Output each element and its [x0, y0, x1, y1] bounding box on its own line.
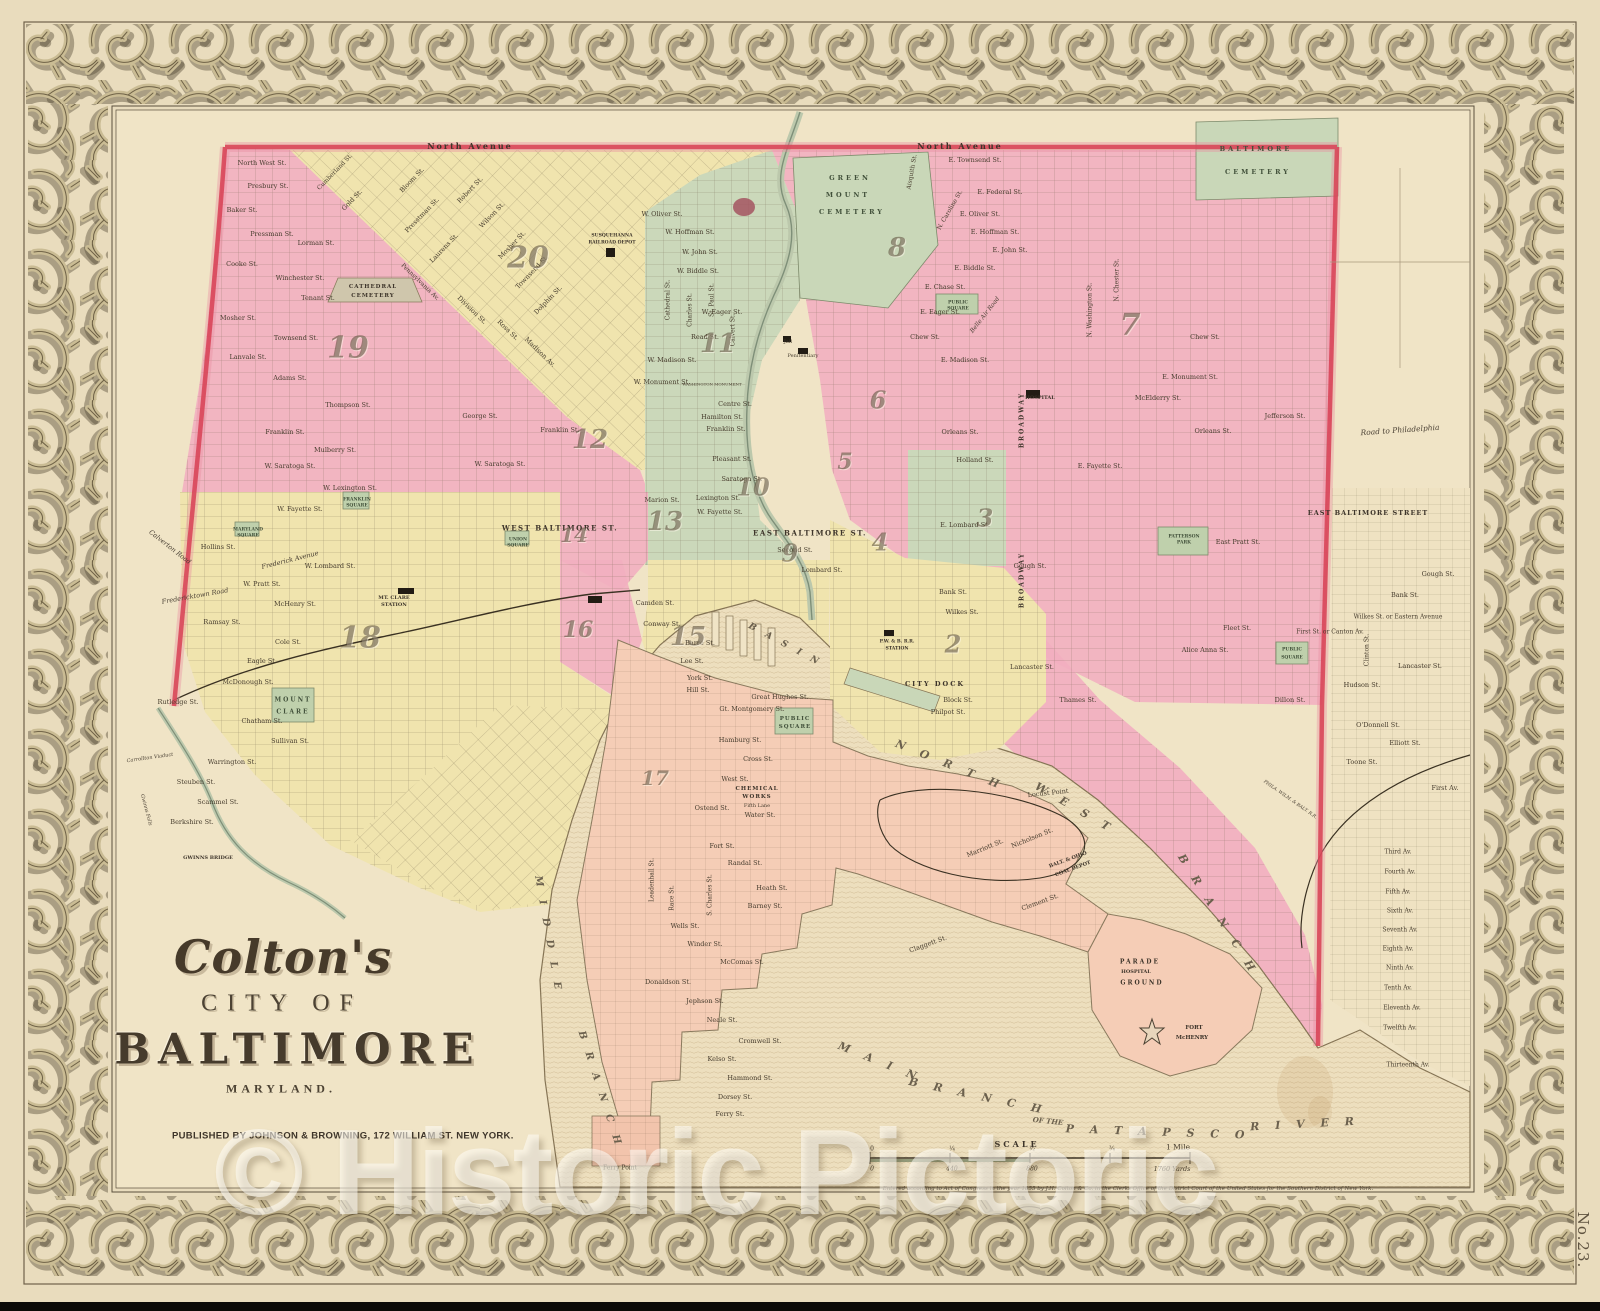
map-label: Wilkes St.	[945, 608, 978, 616]
map-label: MOUNT	[274, 697, 311, 704]
map-label: Philpot St.	[931, 708, 966, 716]
map-label: R I V E R	[1250, 1115, 1360, 1134]
map-label: Madison Av.	[523, 335, 557, 368]
map-label: Winchester St.	[276, 274, 325, 282]
map-label: CITY DOCK	[905, 680, 965, 688]
map-label: Fourth Av.	[1384, 869, 1415, 876]
map-label: E. Biddle St.	[954, 264, 995, 272]
ward-number: 19	[327, 331, 369, 366]
map-label: Ferry Point	[603, 1165, 637, 1172]
map-label: N. Washington St.	[1087, 283, 1094, 338]
map-label: Heath St.	[756, 884, 787, 892]
map-label: Orleans St.	[1195, 427, 1232, 435]
map-label: BALTIMORE	[1220, 145, 1293, 153]
map-label: E. Oliver St.	[960, 210, 1000, 218]
map-label: E. Madison St.	[941, 356, 989, 364]
map-label: P.W. & B. R.R.	[880, 640, 915, 645]
map-label: Sullivan St.	[271, 737, 309, 745]
map-label: Marriott St.	[965, 837, 1004, 859]
map-label: PUBLIC	[948, 301, 968, 306]
map-label: Eagle St.	[247, 657, 277, 665]
map-label: PARK	[1177, 541, 1191, 546]
map-label: Robert St.	[455, 175, 484, 205]
map-label: Berkshire St.	[170, 818, 213, 826]
map-label: Winder St.	[687, 940, 722, 948]
map-label: RAILROAD DEPOT	[588, 241, 635, 246]
scale-tick: 880	[1026, 1166, 1037, 1173]
map-label: WASHINGTON MONUMENT	[682, 382, 741, 387]
map-label: Thames St.	[1060, 696, 1097, 704]
map-label: Ninth Av.	[1386, 965, 1414, 972]
map-label: PARADE	[1120, 959, 1160, 966]
map-label: Rutledge St.	[158, 698, 199, 706]
map-label: Alice Anna St.	[1182, 646, 1229, 654]
ward-number: 7	[1120, 308, 1141, 343]
map-label: North Avenue	[917, 141, 1003, 151]
map-label: Water St.	[745, 811, 776, 819]
map-label: Bloom St.	[398, 166, 426, 195]
scale-tick: 0	[870, 1146, 874, 1153]
map-label: N O R T H	[893, 737, 1006, 793]
map-label: W. Fayette St.	[697, 508, 742, 516]
map-label: HOSPITAL	[1025, 395, 1055, 401]
map-label: W. Fayette St.	[277, 505, 322, 513]
map-label: Leadenhall St.	[649, 858, 656, 902]
map-label: Franklin St.	[706, 425, 745, 433]
map-sheet: North AvenueNorth AvenueNorth West St.Pr…	[0, 0, 1600, 1311]
map-label: W. Pratt St.	[243, 580, 280, 588]
ward-number: 16	[563, 617, 594, 643]
map-label: HOSPITAL	[1121, 969, 1151, 975]
map-label: Fifth Av.	[1385, 889, 1410, 896]
map-label: Chew St.	[910, 333, 940, 341]
map-label: North West St.	[238, 159, 287, 167]
map-label: Cathedral St.	[665, 280, 672, 321]
map-label: Gold St.	[340, 188, 364, 213]
ward-number: 6	[870, 386, 887, 415]
map-label: CEMETERY	[819, 208, 885, 216]
map-label: Pleasant St.	[712, 455, 751, 463]
map-label: Fredericktown Road	[161, 586, 229, 606]
map-label: Dillon St.	[1275, 696, 1306, 704]
ward-number: 3	[977, 504, 994, 533]
map-label: FORT	[1185, 1025, 1202, 1031]
scale-tick: 1760 Yards	[1154, 1165, 1191, 1173]
ward-number: 14	[560, 523, 588, 547]
map-label: McHenry St.	[274, 600, 316, 608]
map-label: West St.	[721, 775, 748, 783]
map-title-maryland: MARYLAND.	[226, 1082, 336, 1097]
scale-tick: 1 Mile	[1166, 1143, 1190, 1152]
map-label: Chatham St.	[241, 717, 282, 725]
scale-tick: ½	[1029, 1146, 1035, 1153]
map-label: Lombard St.	[802, 566, 843, 574]
map-label: B R A N C H	[576, 1030, 625, 1151]
map-label: Calverton Road	[147, 528, 192, 566]
map-label: First St. or Canton Av.	[1296, 629, 1364, 636]
map-label: Elliott St.	[1389, 739, 1420, 747]
map-label: Townsend St.	[274, 334, 318, 342]
map-label: Road to Philadelphia	[1360, 423, 1439, 437]
map-label: SQUARE	[1281, 656, 1303, 661]
map-label: Twelfth Av.	[1383, 1025, 1416, 1032]
map-label: MOUNT	[826, 191, 870, 199]
copyright-line: Entered according to Act of Congress in …	[883, 1186, 1374, 1192]
ward-number: 8	[888, 233, 906, 263]
map-label: SQUARE	[237, 534, 259, 539]
map-label: Franklin St.	[265, 428, 304, 436]
map-label: CEMETERY	[351, 293, 394, 299]
map-label: Aisquith St.	[905, 154, 918, 190]
map-label: Eighth Av.	[1383, 946, 1414, 953]
map-label: Nicholson St.	[1010, 826, 1054, 850]
scale-tick: 0	[870, 1166, 874, 1173]
map-label: CATHEDRAL	[349, 284, 397, 290]
map-label: W. Saratoga St.	[265, 462, 316, 470]
map-label: Claggett St.	[908, 933, 948, 954]
map-label: Dorsey St.	[718, 1093, 752, 1101]
map-label: Jail	[784, 339, 792, 345]
map-label: Presbury St.	[248, 182, 289, 190]
map-label: Cross St.	[743, 755, 773, 763]
map-label: OF THE	[1032, 1115, 1063, 1127]
map-label: Scammel St.	[197, 798, 238, 806]
map-label: P A T A P S C O	[1065, 1122, 1250, 1141]
ward-number: 13	[647, 507, 683, 537]
map-label: Gt. Montgomery St.	[719, 705, 784, 713]
publisher-imprint: PUBLISHED BY JOHNSON & BROWNING, 172 WIL…	[172, 1131, 514, 1142]
map-label: MT. CLARE	[378, 595, 409, 601]
map-label: Centre St.	[718, 400, 752, 408]
map-label: Marion St.	[644, 496, 679, 504]
map-label: PATTERSON	[1168, 535, 1199, 540]
map-label: Jefferson St.	[1265, 412, 1306, 420]
map-label: Clinton St.	[1364, 634, 1371, 667]
map-label: McDonough St.	[222, 678, 273, 686]
map-label: Mosher St.	[220, 314, 256, 322]
map-label: W. Hoffman St.	[665, 228, 714, 236]
map-label: Cumberland St.	[316, 152, 354, 191]
ward-number: 9	[782, 539, 799, 568]
map-label: SUSQUEHANNA	[591, 234, 632, 239]
map-label: GROUND	[1120, 980, 1163, 987]
map-label: Lorman St.	[298, 239, 335, 247]
map-label: Hollins St.	[201, 543, 236, 551]
map-label: FRANKLIN	[343, 498, 371, 503]
map-label: N. Chester St.	[1114, 259, 1121, 302]
map-label: O'Donnell St.	[1356, 721, 1400, 729]
ward-number: 17	[641, 766, 669, 790]
map-label: Eleventh Av.	[1383, 1005, 1421, 1012]
map-label: Hamburg St.	[719, 736, 762, 744]
map-label: Lanvale St.	[229, 353, 266, 361]
map-label: Race St.	[669, 885, 676, 910]
map-label: Ramsay St.	[203, 618, 240, 626]
map-label: W. Oliver St.	[642, 210, 683, 218]
map-label: Fleet St.	[1223, 624, 1251, 632]
ward-number: 2	[945, 630, 962, 659]
map-label: STATION	[381, 602, 407, 608]
map-label: Chew St.	[1190, 333, 1220, 341]
map-label: Hamilton St.	[701, 413, 743, 421]
ward-number: 12	[572, 425, 608, 455]
map-label: East Pratt St.	[1216, 538, 1260, 546]
map-label: E. Fayette St.	[1078, 462, 1123, 470]
map-label: Cole St.	[275, 638, 301, 646]
map-label: Block St.	[943, 696, 973, 704]
map-label: Warrington St.	[208, 758, 257, 766]
map-label: PUBLIC	[1282, 648, 1302, 653]
map-label: Lee St.	[680, 657, 703, 665]
ward-number: 4	[872, 528, 889, 557]
map-label: Charles St.	[687, 293, 694, 327]
map-label: Division St.	[456, 294, 489, 326]
map-label: Adams St.	[273, 374, 306, 382]
map-label: Tenth Av.	[1384, 985, 1412, 992]
map-label: B R A N C H	[1175, 852, 1261, 979]
map-label: E. Monument St.	[1162, 373, 1218, 381]
map-label: Ostend St.	[695, 804, 730, 812]
map-label: Gwinns Falls	[139, 794, 153, 827]
map-label: W. John St.	[682, 248, 718, 256]
map-label: Sixth Av.	[1387, 908, 1413, 915]
map-label: W. Biddle St.	[677, 267, 719, 275]
map-label: GWINNS BRIDGE	[183, 855, 233, 861]
map-label: Belle Air Road	[969, 296, 1002, 335]
map-label: Baker St.	[227, 206, 258, 214]
map-label: SQUARE	[947, 307, 969, 312]
map-label: Fifth Lane	[744, 803, 770, 809]
map-label: Barney St.	[748, 902, 783, 910]
map-label: Dolphin St.	[532, 284, 563, 316]
map-label: Great Hughes St.	[751, 693, 808, 701]
map-label: Neale St.	[707, 1016, 738, 1024]
scale-tick: ¾	[1109, 1146, 1115, 1153]
ward-number: 15	[670, 622, 706, 652]
map-label: Lancaster St.	[1398, 662, 1442, 670]
scale-tick: 440	[946, 1166, 957, 1173]
ward-number: 10	[736, 473, 769, 502]
map-label: Randal St.	[728, 859, 762, 867]
map-label: Orleans St.	[942, 428, 979, 436]
map-label: Seventh Av.	[1382, 927, 1417, 934]
map-label: STATION	[885, 647, 908, 652]
map-label: Cromwell St.	[739, 1037, 782, 1045]
ward-number: 20	[507, 241, 549, 276]
map-label: North Avenue	[427, 141, 513, 151]
map-label: Thirteenth Av.	[1387, 1062, 1430, 1069]
map-label: Third Av.	[1384, 849, 1411, 856]
map-label: Laurens St.	[428, 232, 460, 265]
map-label: Ross St.	[496, 318, 521, 342]
map-label: Hammond St.	[727, 1074, 772, 1082]
antique-map-page: { "artwork": { "title_script": "Colton's…	[0, 0, 1600, 1311]
map-label: Pressman St.	[250, 230, 293, 238]
ward-number: 5	[837, 449, 852, 475]
map-label: Bank St.	[939, 588, 967, 596]
map-label: CEMETERY	[1225, 168, 1291, 176]
map-label: SQUARE	[507, 544, 529, 549]
map-label: E. Chase St.	[925, 283, 965, 291]
map-label: Wells St.	[671, 922, 700, 930]
map-label: SQUARE	[779, 724, 811, 730]
map-label: CLARE	[276, 709, 309, 716]
map-label: Presstman St.	[403, 196, 441, 235]
map-label: W. Madison St.	[647, 356, 696, 364]
map-title-script: Colton's	[174, 930, 392, 984]
map-label: Carrollton Viaduct	[126, 752, 173, 764]
map-label: M I D D L E	[532, 875, 564, 995]
map-label: W. Lombard St.	[305, 562, 356, 570]
map-label: Lancaster St.	[1010, 663, 1054, 671]
map-label: EAST BALTIMORE ST.	[753, 529, 867, 538]
map-label: Bank St.	[1391, 591, 1419, 599]
label-layer: North AvenueNorth AvenueNorth West St.Pr…	[0, 0, 1600, 1311]
map-label: Steuben St.	[177, 778, 216, 786]
map-label: WORKS	[742, 794, 771, 800]
map-label: GREEN	[829, 174, 871, 182]
map-label: Ferry St.	[715, 1110, 744, 1118]
map-label: SQUARE	[346, 504, 368, 509]
scale-tick: ¼	[949, 1146, 955, 1153]
map-label: Thompson St.	[325, 401, 370, 409]
map-label: Mulberry St.	[314, 446, 356, 454]
map-label: First Av.	[1431, 784, 1458, 792]
map-label: BROADWAY	[1019, 552, 1026, 608]
plate-number: No.23.	[1574, 1212, 1592, 1269]
map-label: W. Lexington St.	[323, 484, 377, 492]
map-label: E. John St.	[993, 246, 1028, 254]
map-label: E. Federal St.	[977, 188, 1022, 196]
map-label: Jephson St.	[686, 997, 723, 1005]
map-label: E. Hoffman St.	[971, 228, 1020, 236]
map-label: Penitentiary	[788, 353, 819, 359]
map-label: McComas St.	[720, 958, 764, 966]
map-label: Lexington St.	[696, 494, 740, 502]
map-label: Pennsylvania Av.	[399, 262, 440, 302]
map-label: EAST BALTIMORE STREET	[1308, 509, 1428, 517]
map-label: Wilkes St. or Eastern Avenue	[1354, 614, 1443, 621]
map-label: Gough St.	[1422, 570, 1455, 578]
map-label: PHILA. WILM. & BALT. R.R.	[1262, 780, 1317, 821]
ward-number: 18	[339, 621, 381, 656]
map-label: York St.	[687, 674, 713, 682]
map-label: Toone St.	[1347, 758, 1378, 766]
map-label: George St.	[462, 412, 497, 420]
map-title-city-of: CITY OF	[201, 991, 363, 1018]
map-label: Fort St.	[710, 842, 735, 850]
map-label: Clement St.	[1020, 892, 1059, 913]
map-label: McHENRY	[1176, 1035, 1208, 1041]
map-label: St. Paul St.	[709, 283, 716, 317]
map-label: Donaldson St.	[645, 978, 691, 986]
map-title-baltimore: BALTIMORE	[114, 1025, 481, 1074]
ward-number: 11	[700, 329, 736, 359]
map-label: Holland St.	[956, 456, 993, 464]
map-label: Camden St.	[636, 599, 674, 607]
map-label: UNION	[509, 538, 527, 543]
map-label: B R A N C H	[908, 1075, 1049, 1117]
map-label: CHEMICAL	[736, 786, 779, 792]
map-label: W. Saratoga St.	[475, 460, 526, 468]
map-label: S. Charles St.	[707, 874, 714, 916]
map-label: Wilson St.	[478, 200, 507, 230]
map-label: PUBLIC	[780, 716, 810, 722]
map-label: McElderry St.	[1135, 394, 1181, 402]
map-label: Hill St.	[686, 686, 709, 694]
map-label: B A S I N	[746, 621, 823, 668]
map-label: MARYLAND	[233, 528, 263, 533]
bottom-black-strip	[0, 1302, 1600, 1311]
map-label: Kelso St.	[707, 1055, 736, 1063]
map-label: E. Townsend St.	[948, 156, 1001, 164]
map-label: Cooke St.	[226, 260, 258, 268]
map-label: Tenant St.	[301, 294, 335, 302]
map-label: Hudson St.	[1344, 681, 1381, 689]
